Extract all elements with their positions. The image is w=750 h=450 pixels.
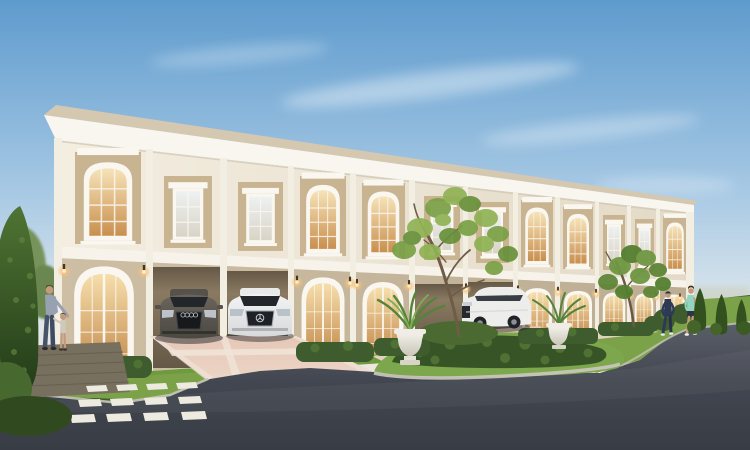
- wall-lamp: [291, 276, 304, 289]
- arched-window-4: [521, 197, 553, 267]
- architectural-rendering: [0, 0, 750, 450]
- windshield: [240, 296, 280, 306]
- windshield: [170, 297, 208, 307]
- wall-lamp: [553, 287, 564, 298]
- arched-window-1: [75, 148, 141, 245]
- wall-lamp: [675, 293, 684, 302]
- rect-window-2: [238, 182, 283, 251]
- wall-lamp: [137, 265, 151, 279]
- wall-lamp: [351, 279, 363, 291]
- arched-window-6: [663, 213, 687, 274]
- rect-window-1: [164, 176, 212, 248]
- wall-lamp: [57, 264, 71, 278]
- wall-lamp: [591, 289, 601, 299]
- arched-window-5: [563, 204, 593, 269]
- suv-windows: [475, 295, 523, 301]
- scene-canvas: [0, 0, 750, 450]
- wall-lamp: [403, 280, 415, 292]
- arched-window-2: [300, 172, 346, 256]
